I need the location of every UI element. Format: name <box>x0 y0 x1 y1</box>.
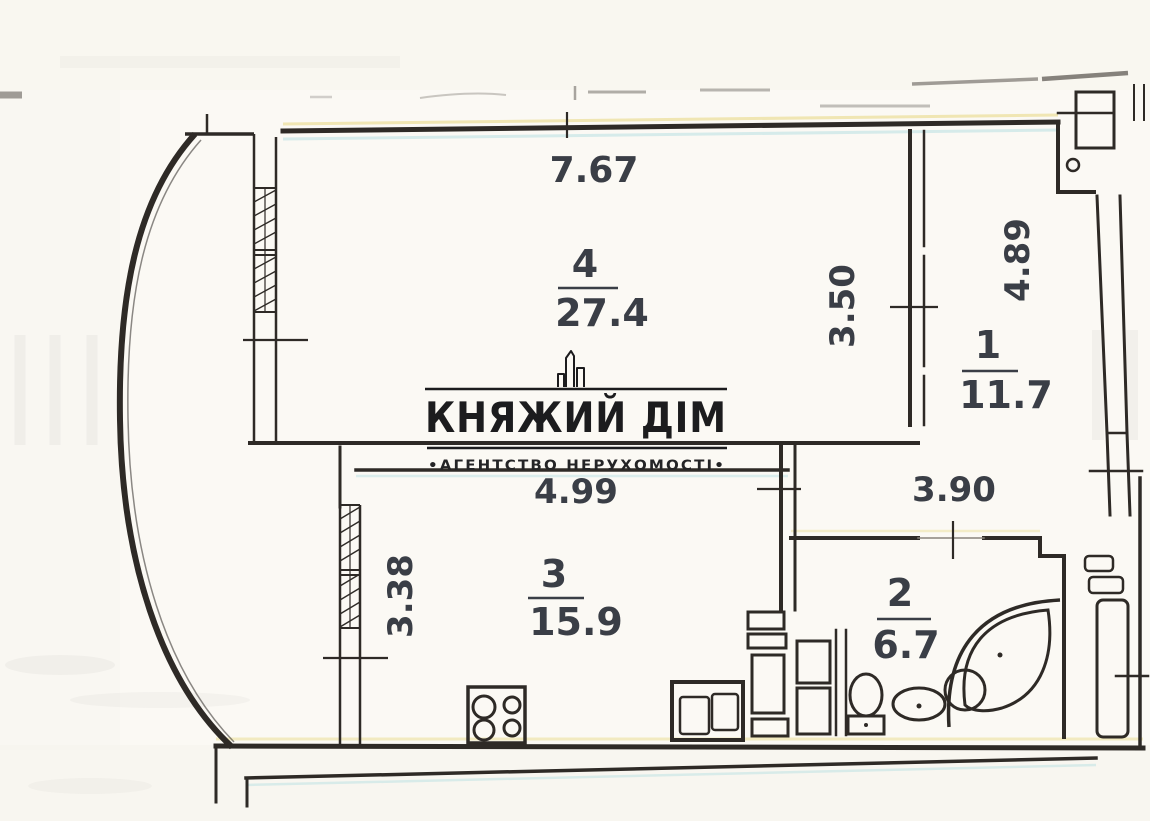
dim-room3-width: 4.99 <box>534 472 618 512</box>
washbasin-icon <box>893 688 945 720</box>
room-number: 4 <box>572 242 598 286</box>
logo-title: КНЯЖИЙ ДІМ <box>425 392 727 442</box>
room-label-3: 3 15.9 <box>528 552 623 644</box>
dim-room4-depth: 3.50 <box>823 264 863 348</box>
room-area: 11.7 <box>959 373 1053 417</box>
wall-bottom <box>216 746 1143 748</box>
radiator-shaft-right <box>1085 556 1128 737</box>
scan-color-fringes <box>216 115 1143 785</box>
dim-room1-depth: 4.89 <box>998 218 1038 302</box>
room-area: 15.9 <box>529 600 623 644</box>
building-skyline-icon <box>558 351 584 387</box>
window-room4-left <box>243 134 308 443</box>
toilet-icon <box>848 674 884 734</box>
vent-circle <box>1067 159 1079 171</box>
window-kitchen-left <box>323 470 388 745</box>
logo-tagline: •АГЕНТСТВО НЕРУХОМОСТІ• <box>428 458 726 474</box>
bay-window <box>120 114 254 747</box>
room-number: 2 <box>887 571 913 615</box>
ventilation-shaft-block <box>748 612 830 736</box>
corner-bathtub-icon <box>945 600 1060 727</box>
scanned-floor-plan-page: 7.67 4.99 3.90 3.50 4.89 3.38 4 27.4 1 1… <box>0 0 1150 821</box>
room-area: 6.7 <box>872 623 939 667</box>
dim-hall-width: 3.90 <box>912 470 996 510</box>
room-number: 1 <box>975 323 1001 367</box>
dim-room3-depth: 3.38 <box>381 554 421 638</box>
floor-plan-drawing: 7.67 4.99 3.90 3.50 4.89 3.38 4 27.4 1 1… <box>0 0 1150 821</box>
room-number: 3 <box>541 552 567 596</box>
room-area: 27.4 <box>555 291 649 335</box>
agency-logo: КНЯЖИЙ ДІМ •АГЕНТСТВО НЕРУХОМОСТІ• <box>425 351 727 474</box>
room-label-1: 1 11.7 <box>959 323 1053 417</box>
room-label-2: 2 6.7 <box>872 571 939 667</box>
kitchen-sink-icon <box>672 682 743 740</box>
duct-top-right <box>1076 92 1114 148</box>
stove-icon <box>468 687 525 743</box>
wall-bathroom-inner <box>836 630 846 735</box>
room-label-4: 4 27.4 <box>555 242 649 335</box>
dim-room4-width: 7.67 <box>550 150 639 191</box>
